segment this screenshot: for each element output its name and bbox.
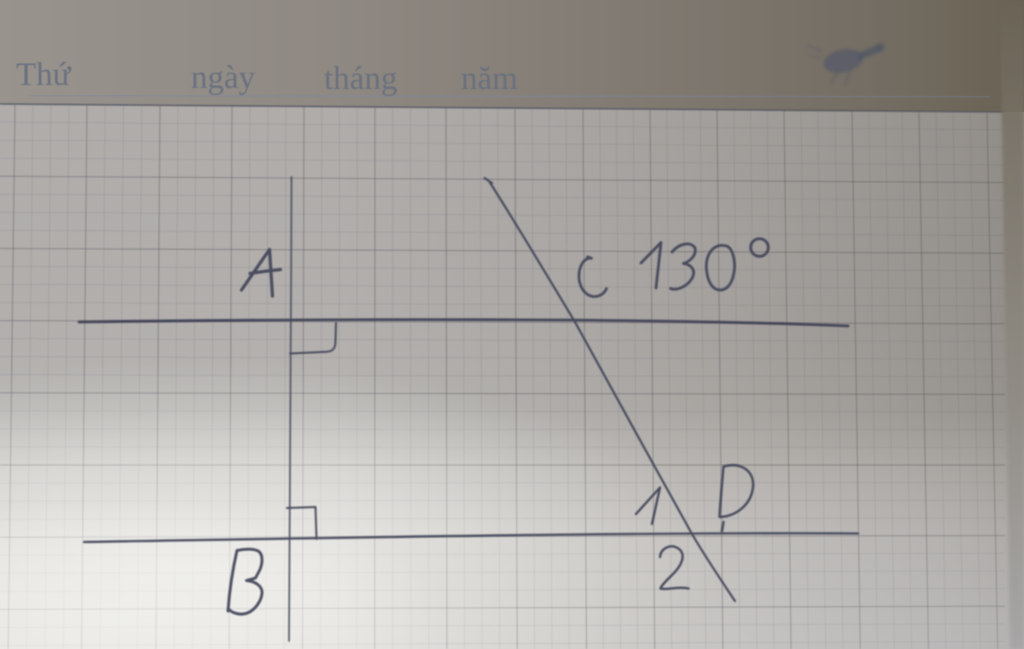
- svg-text:tháng: tháng: [324, 61, 397, 97]
- svg-text:Thứ: Thứ: [16, 57, 72, 93]
- svg-text:năm: năm: [461, 61, 518, 97]
- svg-text:ngày: ngày: [191, 60, 256, 96]
